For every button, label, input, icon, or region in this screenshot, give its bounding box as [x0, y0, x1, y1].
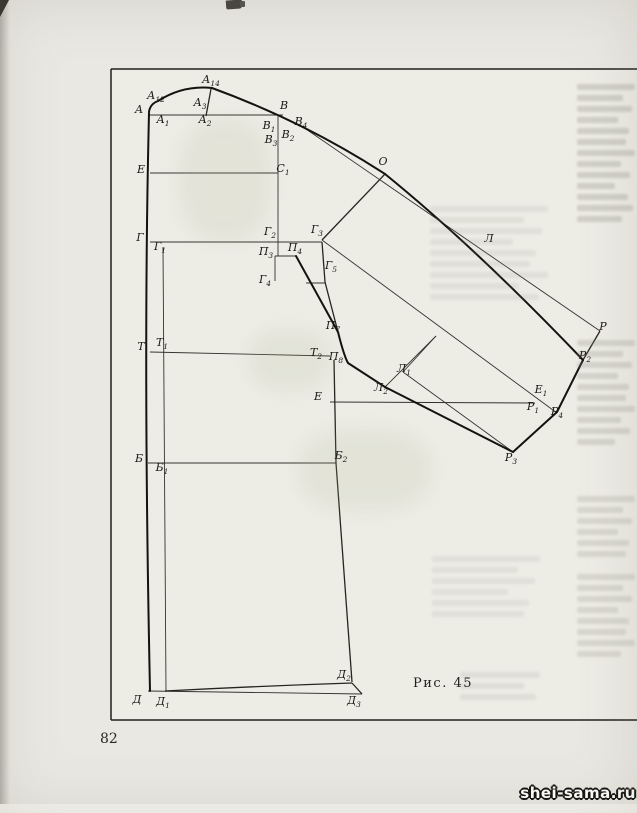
point-label-Е1: Е1 — [535, 383, 548, 396]
point-label-Д2: Д2 — [337, 668, 351, 681]
point-label-А14: А14 — [202, 73, 220, 86]
outline-front-edge — [146, 113, 150, 691]
point-label-А1: А1 — [156, 113, 169, 126]
ghost-text-line — [432, 578, 535, 584]
ghost-text-line — [577, 205, 633, 211]
ghost-text-line — [577, 651, 621, 657]
ghost-text-line — [577, 172, 630, 178]
ghost-text-line — [577, 428, 630, 434]
ghost-text-line — [577, 629, 626, 635]
point-label-Е: Е — [137, 163, 145, 176]
ghost-text-line — [577, 194, 628, 200]
ghost-text-line — [577, 496, 635, 502]
side-seam — [334, 360, 352, 682]
point-label-Т1: Т1 — [156, 336, 168, 349]
hem-curve — [165, 683, 352, 691]
ghost-text-line — [430, 283, 519, 289]
scan-stain — [180, 120, 270, 240]
point-label-А12: А12 — [147, 89, 165, 102]
point-label-Б2: Б2 — [335, 449, 348, 462]
ghost-text-line — [577, 106, 632, 112]
point-label-Р: Р — [599, 320, 606, 333]
ghost-text-line — [577, 216, 622, 222]
ghost-text-line — [460, 694, 536, 700]
point-label-В1: В1 — [263, 119, 276, 132]
seam-L1-P3 — [403, 372, 513, 452]
line-hem-baseline — [148, 691, 362, 694]
point-label-В4: В4 — [295, 115, 308, 128]
ghost-text-line — [577, 540, 629, 546]
ghost-text-line — [432, 556, 540, 562]
ghost-text-line — [430, 294, 539, 300]
ghost-text-line — [577, 607, 618, 613]
ghost-text-line — [577, 585, 623, 591]
ghost-text-line — [432, 567, 518, 573]
ghost-text-line — [577, 139, 626, 145]
ghost-text-line — [430, 272, 548, 278]
pattern-diagram — [0, 0, 637, 813]
ghost-text-line — [577, 618, 629, 624]
point-label-А2: А2 — [198, 113, 211, 126]
scan-bottom-edge — [0, 804, 637, 813]
ghost-text-line — [577, 161, 621, 167]
outline-sleeve-top-2 — [385, 174, 583, 360]
ghost-text-line — [577, 596, 632, 602]
point-label-П4: П4 — [288, 241, 302, 254]
ghost-text-line — [577, 574, 635, 580]
ghost-text-line — [577, 384, 629, 390]
point-label-Т2: Т2 — [310, 346, 322, 359]
seam-P7-P8-L2 — [338, 332, 385, 387]
point-label-Д: Д — [133, 693, 142, 706]
point-label-Л2: Л2 — [374, 381, 388, 394]
page-number: 82 — [100, 731, 118, 747]
ghost-text-line — [430, 206, 548, 212]
ghost-text-line — [577, 406, 635, 412]
point-label-С1: С1 — [276, 162, 289, 175]
ghost-text-line — [577, 150, 635, 156]
point-label-Д3: Д3 — [347, 694, 361, 707]
point-label-А3: А3 — [193, 96, 206, 109]
point-label-Л: Л — [484, 232, 493, 245]
point-label-Б: Б — [135, 452, 143, 465]
ghost-text-line — [577, 417, 621, 423]
point-label-Г1: Г1 — [154, 240, 166, 253]
ghost-text-line — [577, 518, 632, 524]
ghost-text-line — [577, 117, 618, 123]
ghost-text-line — [577, 183, 615, 189]
point-label-Р3: Р3 — [505, 451, 517, 464]
ghost-text-line — [577, 84, 635, 90]
point-label-П7: П7 — [326, 319, 340, 332]
figure-caption: Рис. 45 — [413, 676, 473, 691]
ghost-text-line — [430, 250, 536, 256]
point-label-Г3: Г3 — [311, 223, 323, 236]
ghost-text-line — [577, 640, 635, 646]
ghost-text-line — [577, 395, 626, 401]
ghost-text-line — [430, 239, 513, 245]
point-label-П3: П3 — [259, 245, 273, 258]
ghost-text-line — [430, 261, 530, 267]
ghost-text-line — [432, 589, 508, 595]
point-label-В: В — [280, 99, 288, 112]
point-label-Б1: Б1 — [156, 461, 169, 474]
ghost-text-line — [577, 551, 626, 557]
point-label-В2: В2 — [282, 128, 295, 141]
ghost-text-line — [432, 600, 529, 606]
ghost-text-line — [577, 95, 623, 101]
point-label-В3: В3 — [265, 133, 278, 146]
point-label-Л1: Л1 — [397, 362, 411, 375]
line-elbow-row-E-P1 — [330, 402, 535, 403]
point-label-Д1: Д1 — [156, 695, 170, 708]
point-label-П8: П8 — [329, 350, 343, 363]
point-label-Т: Т — [137, 340, 144, 353]
ghost-text-line — [432, 611, 524, 617]
point-label-Г5: Г5 — [325, 259, 337, 272]
ghost-text-line — [577, 128, 629, 134]
point-label-Е: Е — [314, 390, 322, 403]
ghost-text-line — [577, 507, 623, 513]
ghost-text-line — [577, 373, 618, 379]
scanned-book-page: А12А14АА1А3А2ВВ1В4В2В3ЕС1ГГ1Г2Г3П3П4Г4Г5… — [0, 0, 637, 813]
watermark: shei-sama.ru — [520, 784, 636, 802]
ghost-text-line — [577, 529, 618, 535]
point-label-Р2: Р2 — [579, 349, 591, 362]
ghost-text-line — [577, 439, 615, 445]
scan-top-artifact-2 — [240, 1, 245, 7]
line-O-G3 — [322, 174, 385, 240]
point-label-Г: Г — [136, 231, 143, 244]
point-label-Р4: Р4 — [551, 405, 563, 418]
scan-stain — [300, 430, 430, 510]
ghost-text-line — [577, 340, 635, 346]
point-label-Р1: Р1 — [527, 400, 539, 413]
point-label-Г2: Г2 — [264, 225, 276, 238]
point-label-Г4: Г4 — [259, 273, 271, 286]
ghost-text-line — [430, 217, 524, 223]
point-label-О: О — [378, 155, 387, 168]
hem-corner — [352, 683, 362, 694]
point-label-А: А — [135, 103, 143, 116]
